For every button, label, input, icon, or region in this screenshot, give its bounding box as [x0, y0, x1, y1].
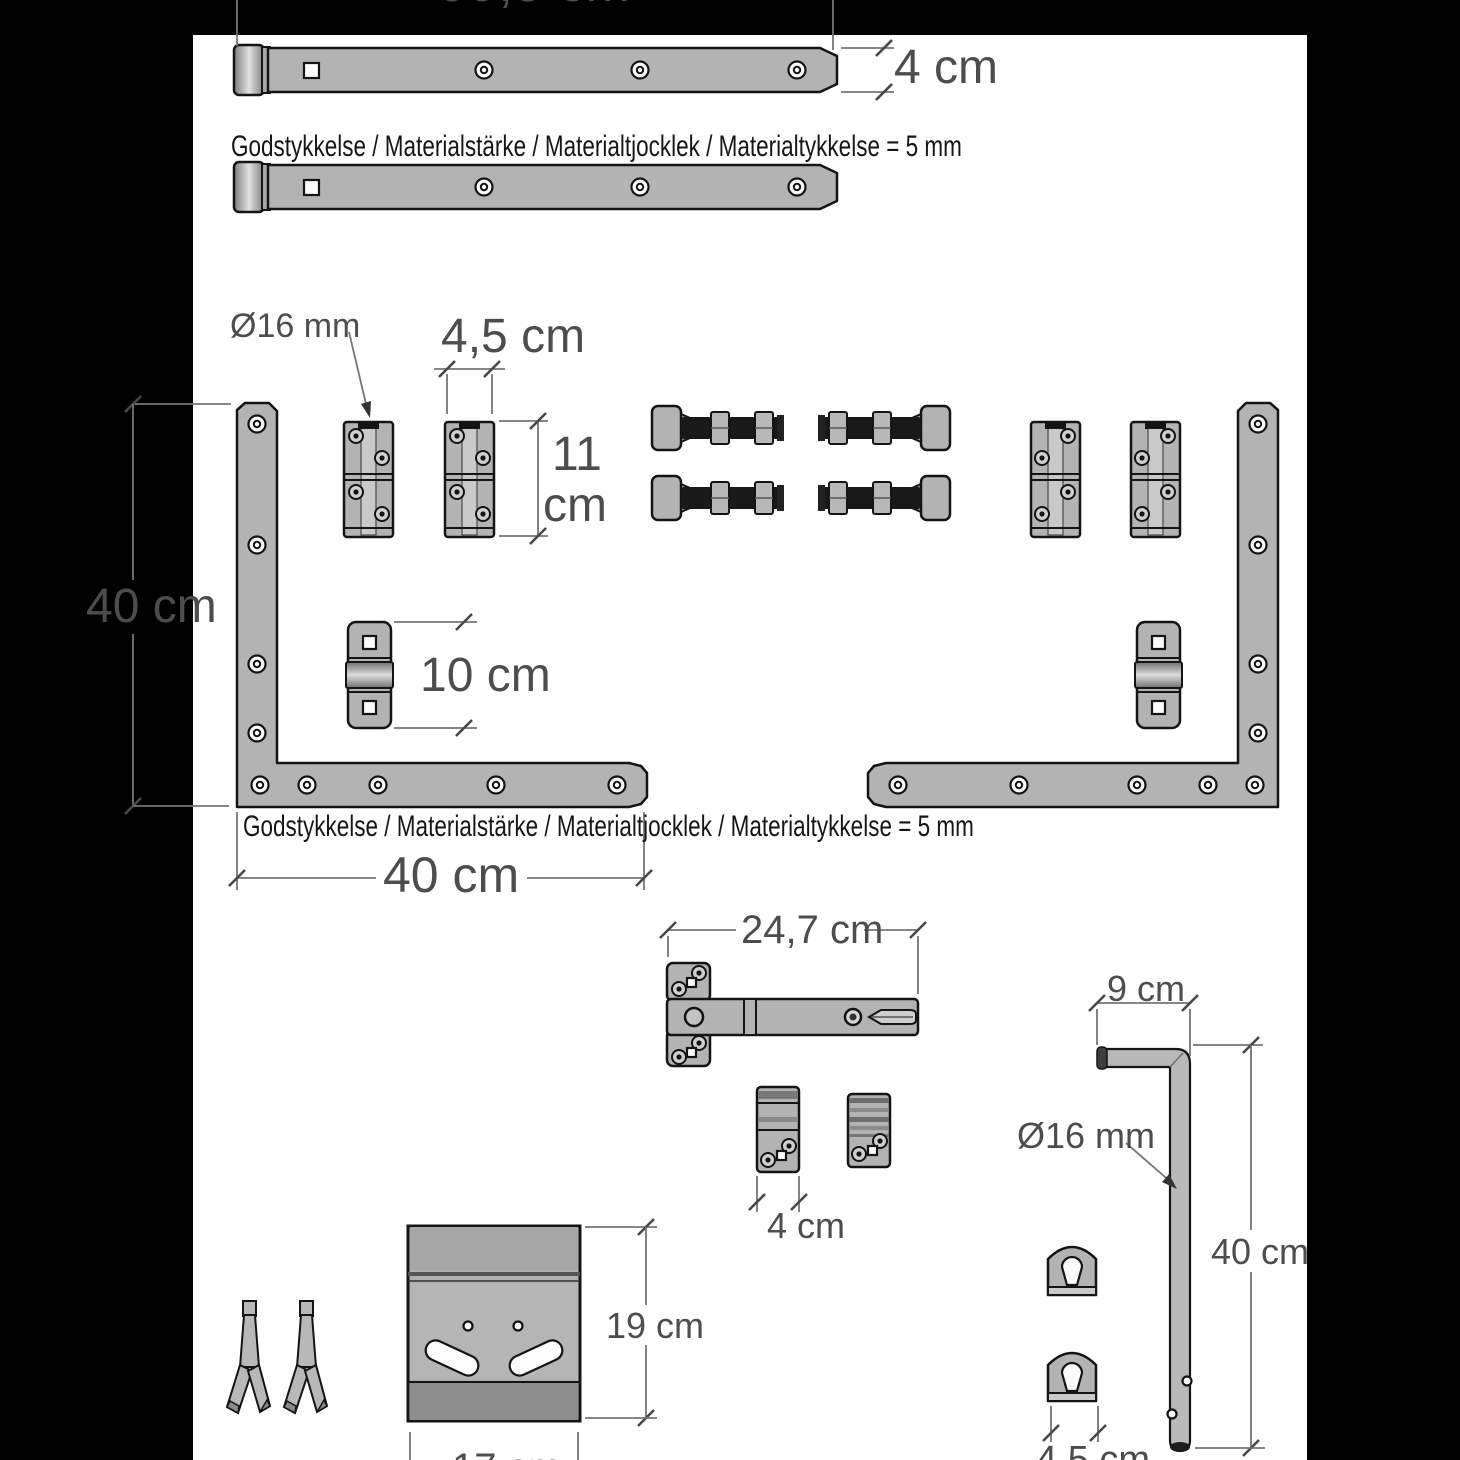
dim-label-rod-length: 40 cm	[1211, 1234, 1309, 1270]
dim-eyelet-width	[1043, 1406, 1106, 1442]
dim-label-hinge-width: 4,5 cm	[441, 313, 585, 361]
hinge-block-3	[1031, 422, 1080, 537]
dim-label-bracket-height: 40 cm	[86, 583, 217, 631]
dim-label-rod-diameter: Ø16 mm	[1017, 1118, 1155, 1154]
dim-label-hinge-height-unit: cm	[543, 482, 607, 530]
thickness-note-bottom: Godstykkelse / Materialstärke / Material…	[243, 812, 974, 842]
keeper-left	[346, 622, 393, 728]
dim-label-plate-width: 17 cm	[452, 1448, 561, 1460]
dim-label-keeper-height: 10 cm	[420, 652, 551, 700]
bolt-4	[818, 476, 950, 520]
forked-stake-2	[284, 1301, 327, 1413]
dim-label-top-length: 99,5 cm	[438, 0, 630, 10]
eyelet-plate-2	[1048, 1353, 1096, 1401]
dim-label-pin-diameter: Ø16 mm	[230, 309, 360, 343]
bolt-2	[652, 476, 784, 520]
dim-label-catch-width: 4 cm	[767, 1208, 845, 1244]
bolt-3	[818, 406, 950, 450]
dim-label-handle-length: 9 cm	[1107, 971, 1185, 1007]
mounting-plate	[408, 1226, 580, 1421]
t-hinge	[667, 963, 918, 1066]
catch-plate-left	[757, 1087, 799, 1172]
keeper-right	[1135, 622, 1182, 728]
dim-label-hinge-height-value: 11	[552, 431, 602, 479]
strap-hinge-top	[234, 45, 837, 95]
dim-label-plate-height: 19 cm	[606, 1308, 704, 1344]
hinge-block-2	[445, 422, 494, 537]
thickness-note-top: Godstykkelse / Materialstärke / Material…	[231, 132, 962, 162]
strap-hinge-bottom	[234, 162, 837, 212]
dim-strap-width	[841, 40, 894, 100]
dim-label-eyelet-width: 4,5 cm	[1036, 1441, 1150, 1460]
drop-bolt	[1097, 1047, 1192, 1452]
dim-hinge-height	[499, 413, 548, 544]
hinge-block-1	[344, 422, 393, 537]
dim-hinge-width	[434, 361, 505, 414]
diagram-canvas: 99,5 cm 4 cm Godstykkelse / Materialstär…	[0, 0, 1460, 1460]
dim-label-bracket-width: 40 cm	[383, 850, 519, 900]
bolt-1	[652, 406, 784, 450]
catch-plate-right	[848, 1094, 890, 1167]
dim-label-strap-width: 4 cm	[894, 44, 998, 92]
forked-stake-1	[227, 1301, 270, 1413]
hinge-block-4	[1131, 422, 1180, 537]
dim-label-t-hinge-length: 24,7 cm	[741, 910, 883, 950]
eyelet-plate-1	[1048, 1247, 1096, 1295]
